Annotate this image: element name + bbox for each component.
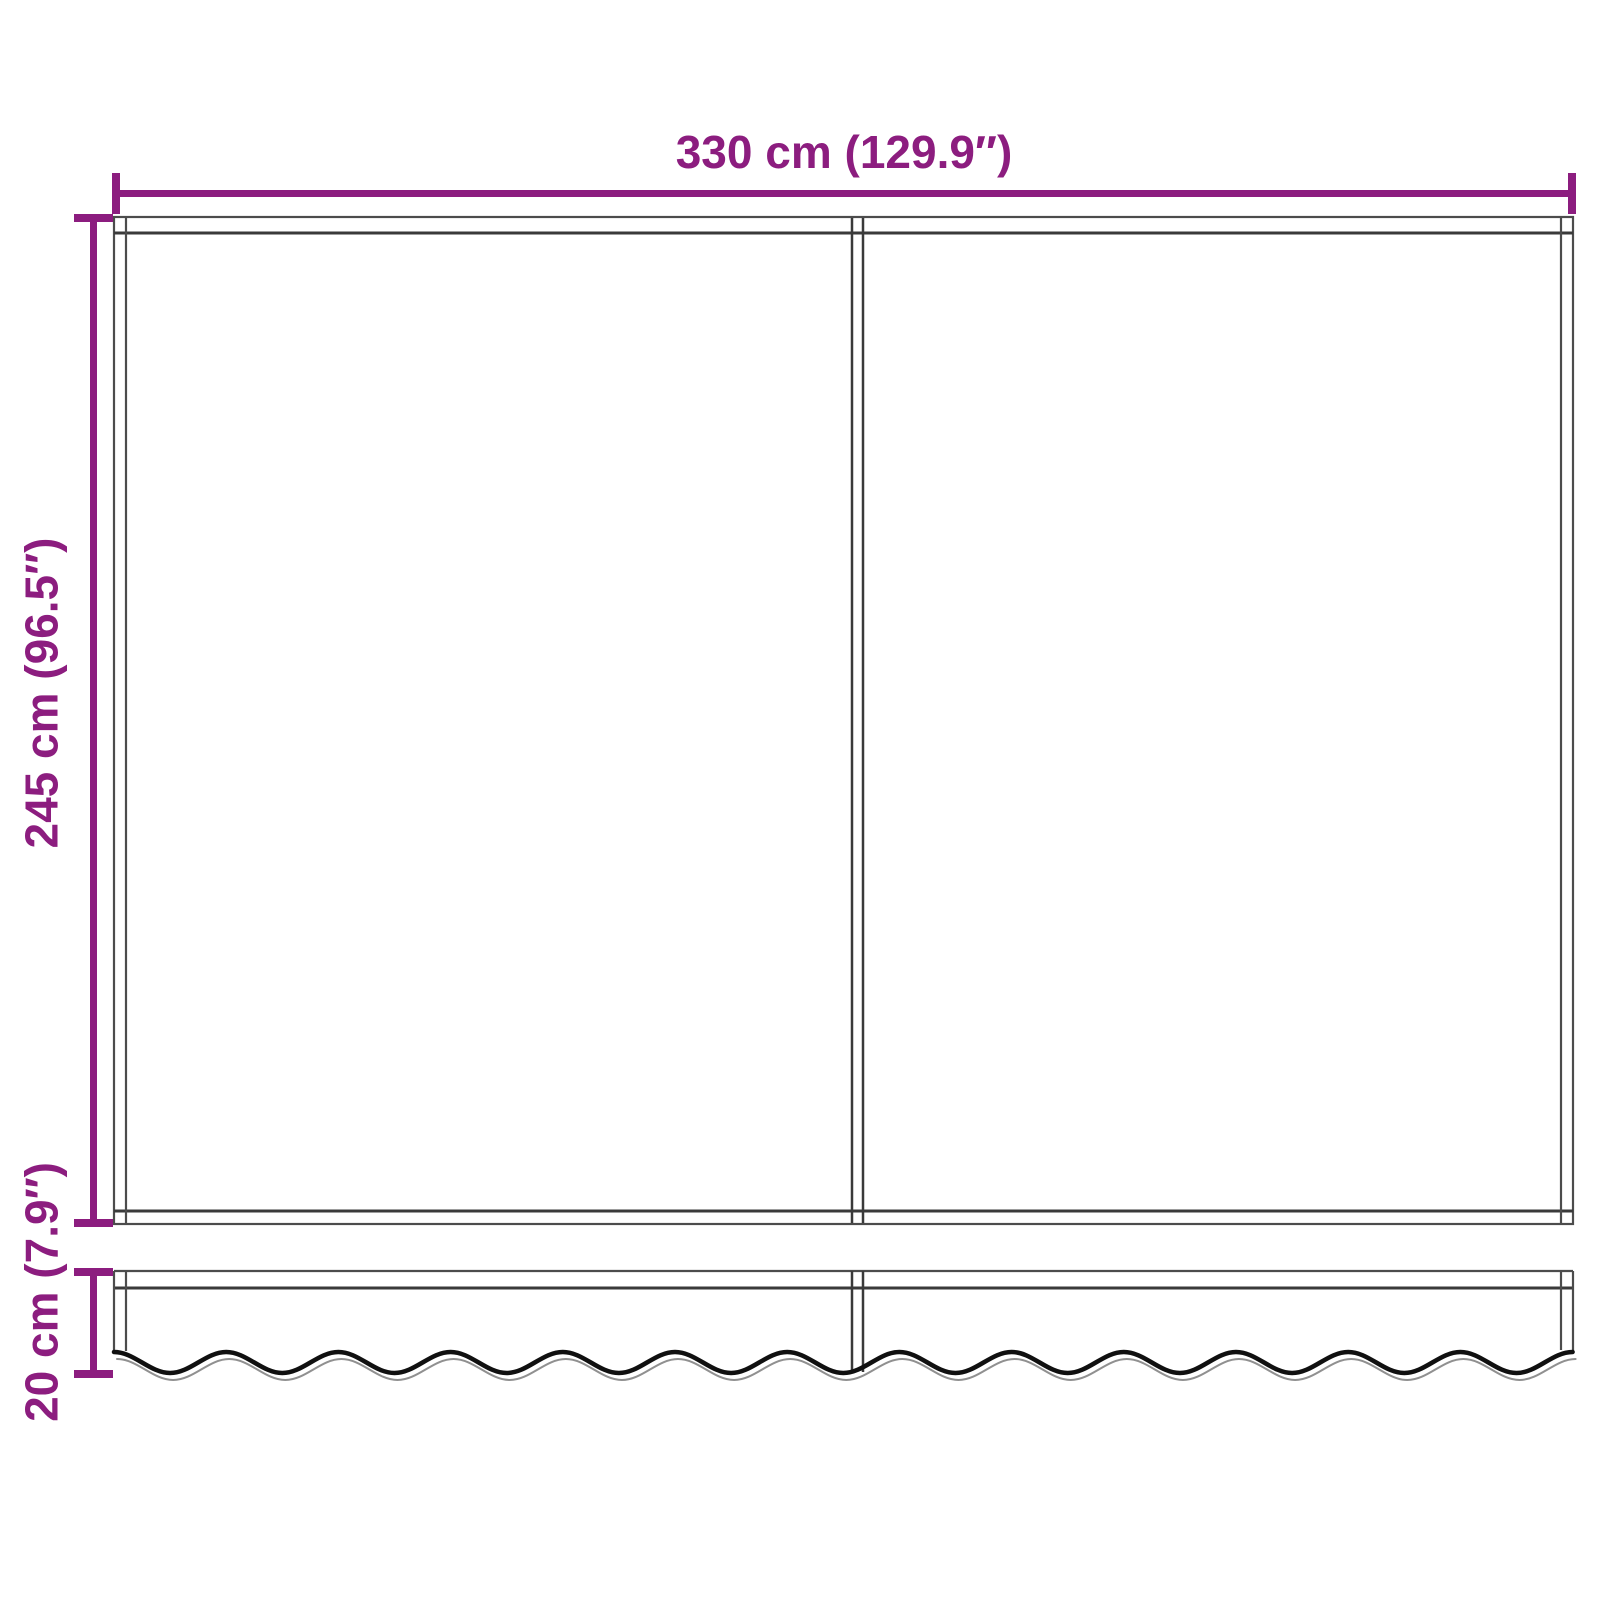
awning-fabric-dimension-drawing: 330 cm (129.9″) 245 cm (96.5″) 20 cm (7.… bbox=[0, 0, 1600, 1600]
main-panel-outline bbox=[114, 217, 1573, 1224]
height-dimension-label: 245 cm (96.5″) bbox=[16, 538, 68, 849]
product-dimension-diagram: 330 cm (129.9″) 245 cm (96.5″) 20 cm (7.… bbox=[0, 0, 1600, 1600]
main-panel-center-seam bbox=[852, 218, 863, 1223]
valance-dimension-label: 20 cm (7.9″) bbox=[16, 1162, 68, 1422]
height-dimension: 245 cm (96.5″) bbox=[16, 218, 114, 1223]
scallop-wave-line bbox=[114, 1352, 1573, 1373]
valance-panel bbox=[114, 1271, 1576, 1380]
valance-scalloped-edge bbox=[114, 1352, 1576, 1380]
main-fabric-panel bbox=[114, 217, 1573, 1224]
width-dimension: 330 cm (129.9″) bbox=[116, 126, 1572, 214]
width-dimension-label: 330 cm (129.9″) bbox=[676, 126, 1013, 178]
scallop-wave-shadow-line bbox=[117, 1359, 1576, 1380]
valance-center-seam bbox=[852, 1271, 863, 1372]
valance-height-dimension: 20 cm (7.9″) bbox=[16, 1162, 114, 1422]
